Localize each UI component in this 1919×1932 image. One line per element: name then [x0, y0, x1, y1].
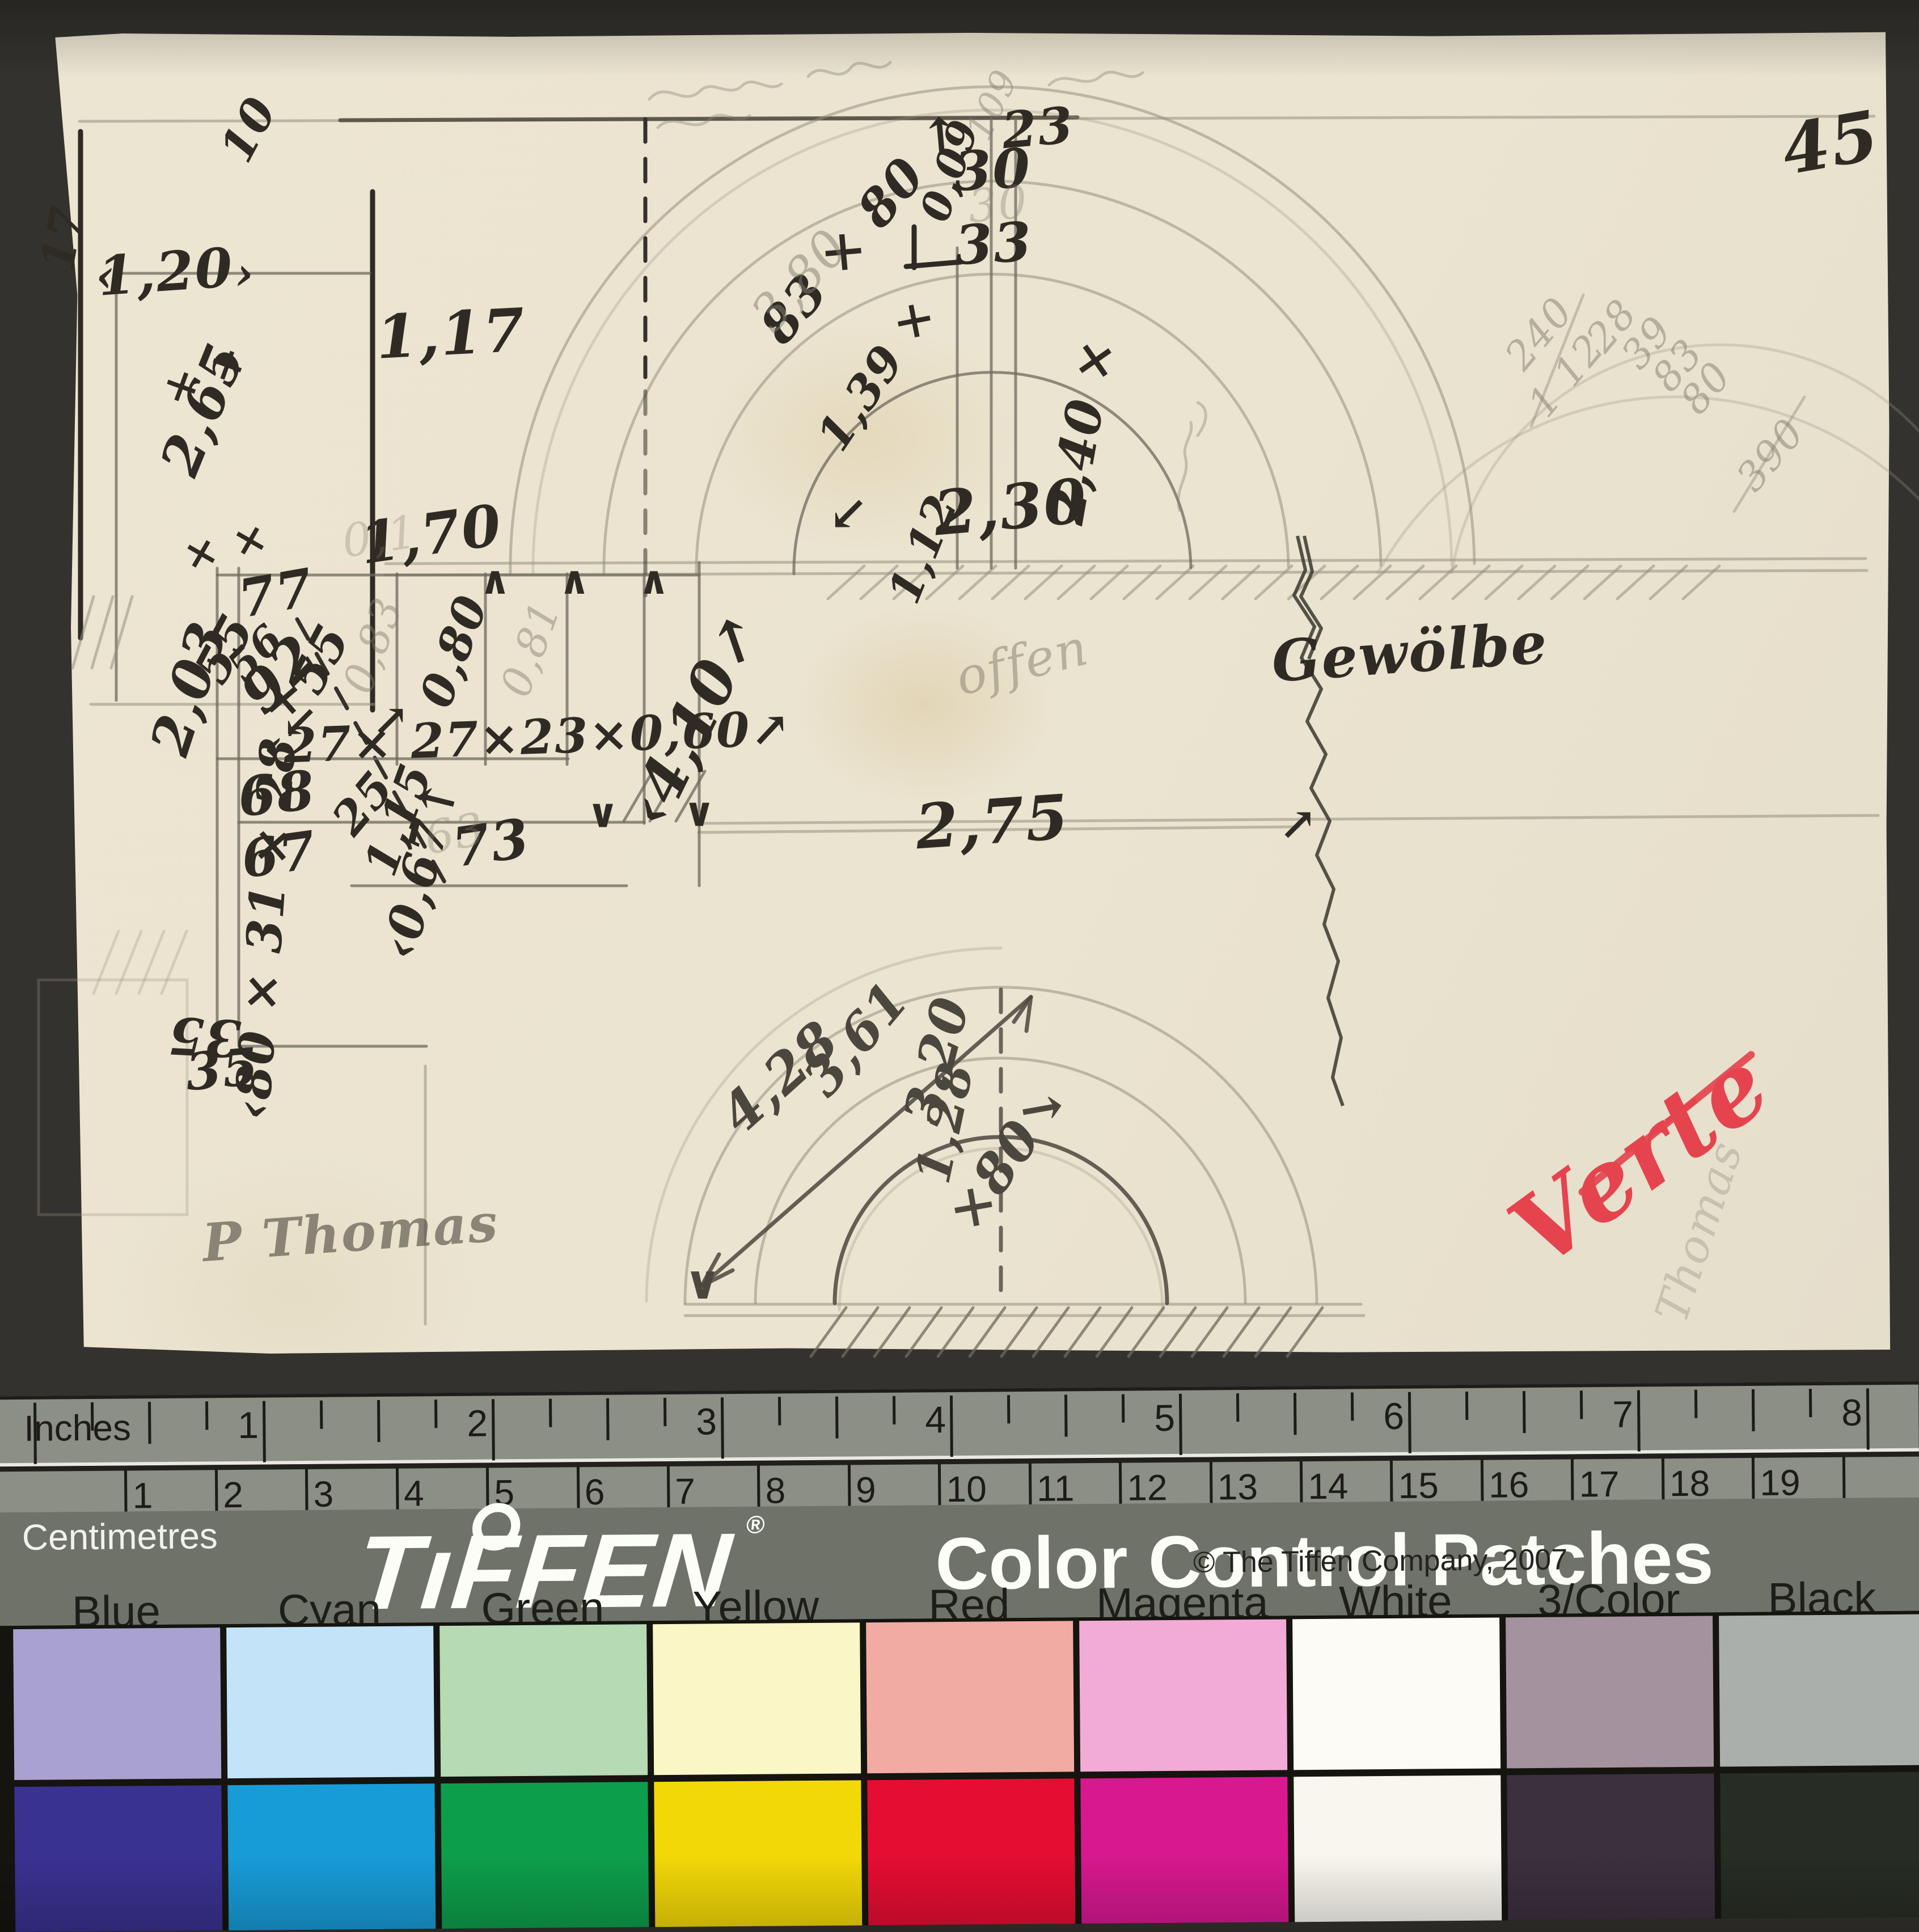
cm-number: 9 [856, 1469, 876, 1511]
inch-tick [1351, 1392, 1354, 1421]
inch-tick [320, 1401, 323, 1429]
inch-tick [263, 1401, 266, 1462]
cm-tick [1119, 1462, 1122, 1507]
inch-tick [1809, 1389, 1812, 1417]
cm-tick [667, 1466, 670, 1510]
sketch-annotation: ↗ [1279, 797, 1318, 850]
inch-tick [663, 1398, 666, 1426]
sketch-annotation: ↙ [281, 696, 319, 747]
inch-tick [205, 1401, 208, 1430]
color-patch-green-pastel [439, 1624, 648, 1777]
inch-tick [1294, 1393, 1297, 1435]
inch-tick [33, 1403, 37, 1464]
color-patch-blue-saturated [14, 1785, 222, 1932]
inch-tick [377, 1400, 381, 1442]
chart-header: TıFFEN ® Color Control Patches © The Tif… [0, 1498, 1919, 1626]
sketch-annotation: 2,75 [913, 781, 1071, 864]
chart-copyright: © The Tiffen Company, 2007 [1193, 1543, 1567, 1580]
cm-number: 12 [1127, 1466, 1168, 1509]
tiffen-chart: Inches 12345678 123456789101112131415161… [0, 1381, 1919, 1932]
inch-tick [1580, 1390, 1583, 1419]
cm-tick [305, 1469, 308, 1513]
color-patch-green-saturated [441, 1782, 649, 1929]
cm-tick [1842, 1457, 1845, 1501]
sketch-annotation: ∧ [638, 558, 670, 603]
centimetres-label: Centimetres [22, 1515, 218, 1558]
color-patch-cyan-pastel [226, 1626, 434, 1778]
cm-number: 4 [404, 1472, 424, 1514]
cm-number: 17 [1579, 1463, 1620, 1506]
sketch-annotation: ↙ [828, 485, 869, 542]
sketch-annotation: ∧ [559, 558, 591, 603]
inch-tick [1064, 1394, 1068, 1436]
sketch-annotation: 35 [183, 1037, 261, 1103]
color-patch-yellow-pastel [653, 1622, 861, 1775]
patch-column [13, 1624, 222, 1932]
cm-number: 1 [132, 1474, 153, 1516]
patch-column [653, 1619, 862, 1927]
cm-tick [1390, 1460, 1393, 1504]
registered-mark: ® [745, 1511, 766, 1540]
inch-number: 4 [925, 1398, 946, 1441]
archival-photo: 450,0923303383 × 80 ↗1,39 ×2,40 ×2,301,1… [0, 0, 1919, 1932]
color-patch-3color-pastel [1506, 1616, 1714, 1769]
inch-tick [1408, 1392, 1411, 1453]
color-patch-black-saturated [1720, 1772, 1919, 1919]
cm-number: 8 [765, 1469, 785, 1511]
cm-number: 10 [946, 1468, 987, 1511]
cm-number: 11 [1037, 1467, 1075, 1510]
inch-tick [148, 1402, 151, 1444]
inch-tick [1637, 1390, 1641, 1452]
cm-tick [938, 1464, 941, 1508]
patch-column [439, 1621, 649, 1929]
inch-number: 6 [1383, 1394, 1404, 1438]
inch-number: 2 [467, 1401, 488, 1444]
sketch-annotation: 0,1 [339, 505, 421, 568]
inch-number: 8 [1841, 1390, 1862, 1434]
page-number: 45 [1776, 95, 1886, 191]
inch-tick [721, 1397, 724, 1458]
cm-number: 13 [1218, 1466, 1258, 1508]
cm-tick [1481, 1460, 1484, 1504]
inch-tick [1179, 1394, 1182, 1455]
inches-label: Inches [24, 1406, 131, 1449]
patch-column [226, 1622, 436, 1930]
inch-number: 3 [696, 1400, 717, 1443]
inch-number: 7 [1612, 1393, 1633, 1436]
sketch-annotation: ∨ [587, 790, 620, 837]
color-patch-magenta-pastel [1079, 1619, 1287, 1772]
color-patch-white-saturated [1294, 1775, 1502, 1922]
inch-tick [606, 1398, 610, 1440]
cm-tick [1752, 1457, 1755, 1502]
sketch-annotation: ↗ [372, 695, 410, 746]
cm-tick [1209, 1461, 1212, 1506]
inch-tick [835, 1397, 839, 1439]
sketch-annotation: 77 [234, 556, 319, 629]
color-patch-black-pastel [1719, 1614, 1919, 1767]
inch-tick [1523, 1391, 1526, 1433]
ruler: Inches 12345678 123456789101112131415161… [0, 1381, 1919, 1516]
patch-column [866, 1617, 1075, 1925]
cm-number: 6 [585, 1471, 605, 1513]
sketch-annotation: ∨ [684, 1255, 723, 1310]
sketch-annotation: 1,20 [96, 236, 236, 308]
cm-tick [757, 1465, 760, 1510]
color-patch-blue-pastel [13, 1627, 221, 1780]
cm-number: 14 [1308, 1465, 1349, 1508]
inch-tick [91, 1402, 94, 1431]
cm-tick [1029, 1463, 1032, 1507]
color-patch-cyan-saturated [227, 1783, 436, 1930]
patch-column [1079, 1616, 1288, 1923]
sketch-annotation: 63 [421, 802, 489, 865]
inch-tick [1752, 1389, 1755, 1431]
inch-tick [893, 1396, 895, 1424]
cm-number: 18 [1669, 1462, 1710, 1505]
cm-number: 7 [675, 1470, 695, 1512]
cm-number: 2 [223, 1474, 243, 1516]
inch-tick [492, 1399, 495, 1460]
color-patch-red-pastel [866, 1621, 1074, 1773]
inch-tick [1007, 1395, 1010, 1423]
inch-tick [1236, 1393, 1239, 1422]
patch-column [1292, 1614, 1502, 1922]
cm-tick [1571, 1458, 1574, 1503]
sketch-annotation: ∨ [683, 789, 717, 836]
cm-tick [215, 1469, 218, 1514]
cm-number: 16 [1489, 1464, 1529, 1506]
color-patch-3color-saturated [1507, 1774, 1715, 1921]
color-patch-red-saturated [867, 1778, 1075, 1925]
patch-grid [0, 1611, 1919, 1932]
patch-column [1506, 1613, 1715, 1921]
color-patch-magenta-saturated [1080, 1777, 1288, 1923]
inch-tick [1866, 1388, 1870, 1449]
inch-tick [1465, 1392, 1468, 1420]
inch-tick [549, 1399, 552, 1427]
inch-tick [1694, 1390, 1697, 1418]
inch-tick [778, 1397, 781, 1425]
ruler-inches: 12345678 [0, 1385, 1918, 1400]
cm-tick [396, 1468, 399, 1512]
cm-tick [1662, 1458, 1665, 1502]
cm-number: 19 [1760, 1461, 1800, 1504]
inch-tick [434, 1400, 437, 1428]
color-patch-white-pastel [1292, 1617, 1500, 1770]
color-patch-yellow-saturated [654, 1780, 862, 1927]
sketch-annotation: 30 [966, 175, 1030, 233]
patch-column [1719, 1611, 1919, 1919]
sketch-annotation: 17 [31, 201, 95, 275]
sketch-annotation: 1,17 [374, 294, 527, 373]
cm-number: 15 [1398, 1464, 1439, 1507]
cm-number: 3 [313, 1473, 333, 1515]
sketch-annotation: › [235, 247, 255, 300]
cm-tick [1300, 1461, 1303, 1505]
inch-tick [1122, 1394, 1125, 1423]
cm-tick [848, 1464, 851, 1508]
cm-tick [577, 1466, 580, 1511]
inch-tick [950, 1396, 953, 1457]
sketch-annotation: ∧ [479, 558, 512, 603]
cm-tick [124, 1470, 128, 1514]
inch-number: 5 [1154, 1396, 1175, 1439]
inch-number: 1 [238, 1403, 259, 1447]
